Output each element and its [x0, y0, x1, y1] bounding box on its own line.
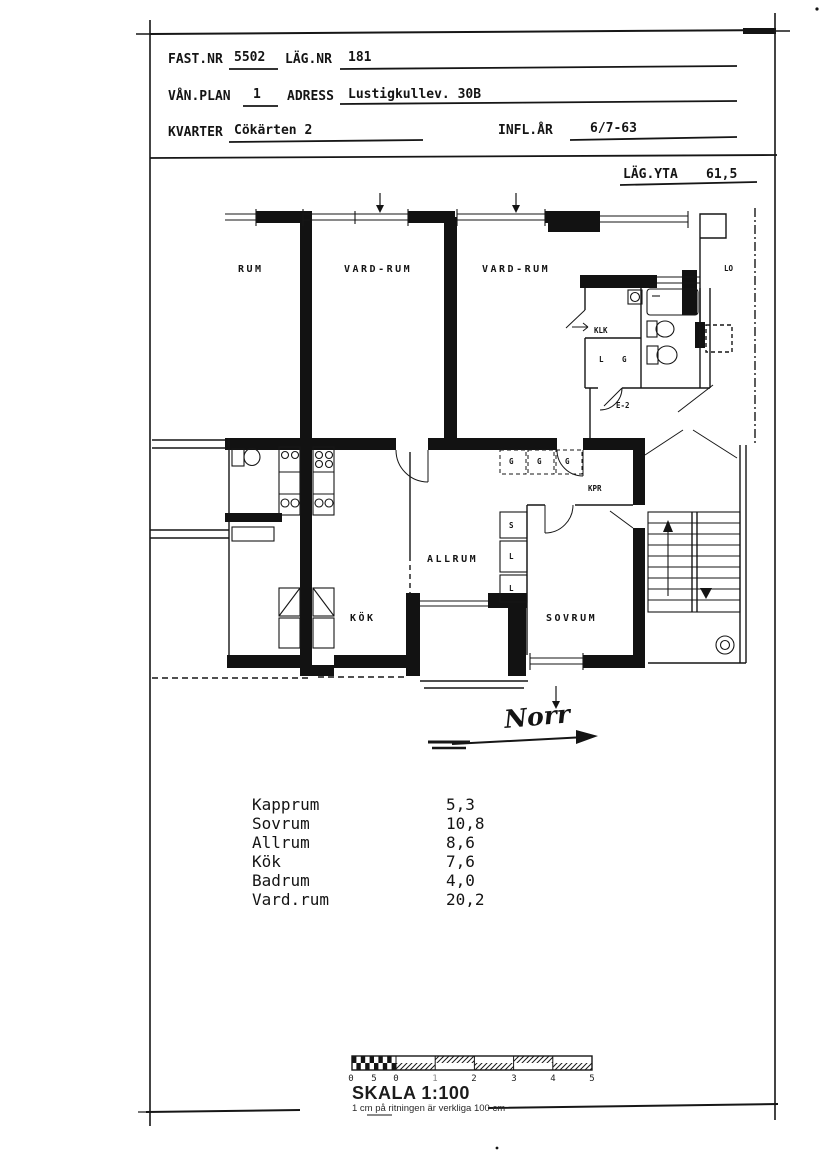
- room-name: Kök: [252, 852, 281, 871]
- floor-plan-drawing: FAST.NR 5502 LÄG.NR 181 VÅN.PLAN 1 ADRES…: [0, 0, 827, 1169]
- label-rum: RUM: [238, 264, 264, 275]
- adress-value: Lustigkullev. 30B: [348, 87, 481, 102]
- scale-tick: 4: [550, 1074, 555, 1084]
- label-e2: E-2: [616, 401, 630, 410]
- room-area: 4,0: [446, 871, 475, 890]
- room-area: 5,3: [446, 795, 475, 814]
- infl-ar-label: INFL.ÅR: [498, 122, 553, 138]
- label-allrum: ALLRUM: [427, 554, 478, 565]
- label-g2: G: [537, 457, 542, 466]
- label-g1: G: [509, 457, 514, 466]
- fast-nr-label: FAST.NR: [168, 52, 223, 67]
- scale-tick: 3: [511, 1074, 516, 1084]
- label-lo: LO: [724, 264, 734, 273]
- lag-yta-label: LÄG.YTA: [623, 166, 678, 182]
- room-name: Vard.rum: [252, 890, 329, 909]
- staircase: [648, 512, 740, 654]
- kvarter-label: KVARTER: [168, 125, 223, 140]
- label-vard-rum-2: VARD-RUM: [482, 264, 550, 275]
- room-name: Allrum: [252, 833, 310, 852]
- label-closet-l: L: [599, 355, 604, 364]
- room-area: 8,6: [446, 833, 475, 852]
- van-plan-value: 1: [253, 87, 261, 102]
- north-arrow: Norr: [428, 699, 598, 748]
- label-vard-rum-1: VARD-RUM: [344, 264, 412, 275]
- scale-tick: 5: [589, 1074, 594, 1084]
- room-area-table: Kapprum 5,3 Sovrum 10,8 Allrum 8,6 Kök 7…: [252, 795, 485, 909]
- label-kok: KÖK: [350, 610, 376, 624]
- lag-yta-value: 61,5: [706, 167, 737, 182]
- label-g3: G: [565, 457, 570, 466]
- scale-caption: SKALA 1:100: [352, 1083, 470, 1103]
- lag-nr-label: LÄG.NR: [285, 51, 332, 67]
- room-name: Sovrum: [252, 814, 310, 833]
- label-sovrum: SOVRUM: [546, 613, 597, 624]
- label-l2: L: [509, 584, 514, 593]
- scanned-floor-plan-document: FAST.NR 5502 LÄG.NR 181 VÅN.PLAN 1 ADRES…: [0, 0, 827, 1169]
- scale-note: 1 cm på ritningen är verkliga 100 cm: [352, 1103, 505, 1114]
- north-label: Norr: [502, 699, 573, 734]
- floor-plan: RUM VARD-RUM VARD-RUM LO KLK L G E-2 KPR…: [150, 193, 755, 709]
- scale-bar-main: [396, 1056, 592, 1070]
- scale-tick: 2: [471, 1074, 476, 1084]
- lag-nr-value: 181: [348, 50, 372, 65]
- van-plan-label: VÅN.PLAN: [168, 88, 231, 104]
- label-l1: L: [509, 552, 514, 561]
- fast-nr-value: 5502: [234, 50, 265, 65]
- header-box: FAST.NR 5502 LÄG.NR 181 VÅN.PLAN 1 ADRES…: [150, 50, 777, 158]
- room-area: 10,8: [446, 814, 485, 833]
- label-closet-g: G: [622, 355, 627, 364]
- adress-label: ADRESS: [287, 89, 334, 104]
- room-name: Kapprum: [252, 795, 319, 814]
- label-kpr: KPR: [588, 484, 602, 493]
- room-area: 20,2: [446, 890, 485, 909]
- room-area: 7,6: [446, 852, 475, 871]
- label-s: S: [509, 521, 514, 530]
- infl-ar-value: 6/7-63: [590, 121, 637, 136]
- lag-yta-field: LÄG.YTA 61,5: [620, 166, 757, 185]
- label-klk: KLK: [594, 326, 608, 335]
- room-name: Badrum: [252, 871, 310, 890]
- kvarter-value: Cökärten 2: [234, 123, 312, 138]
- scale-bar-fine: [352, 1056, 396, 1070]
